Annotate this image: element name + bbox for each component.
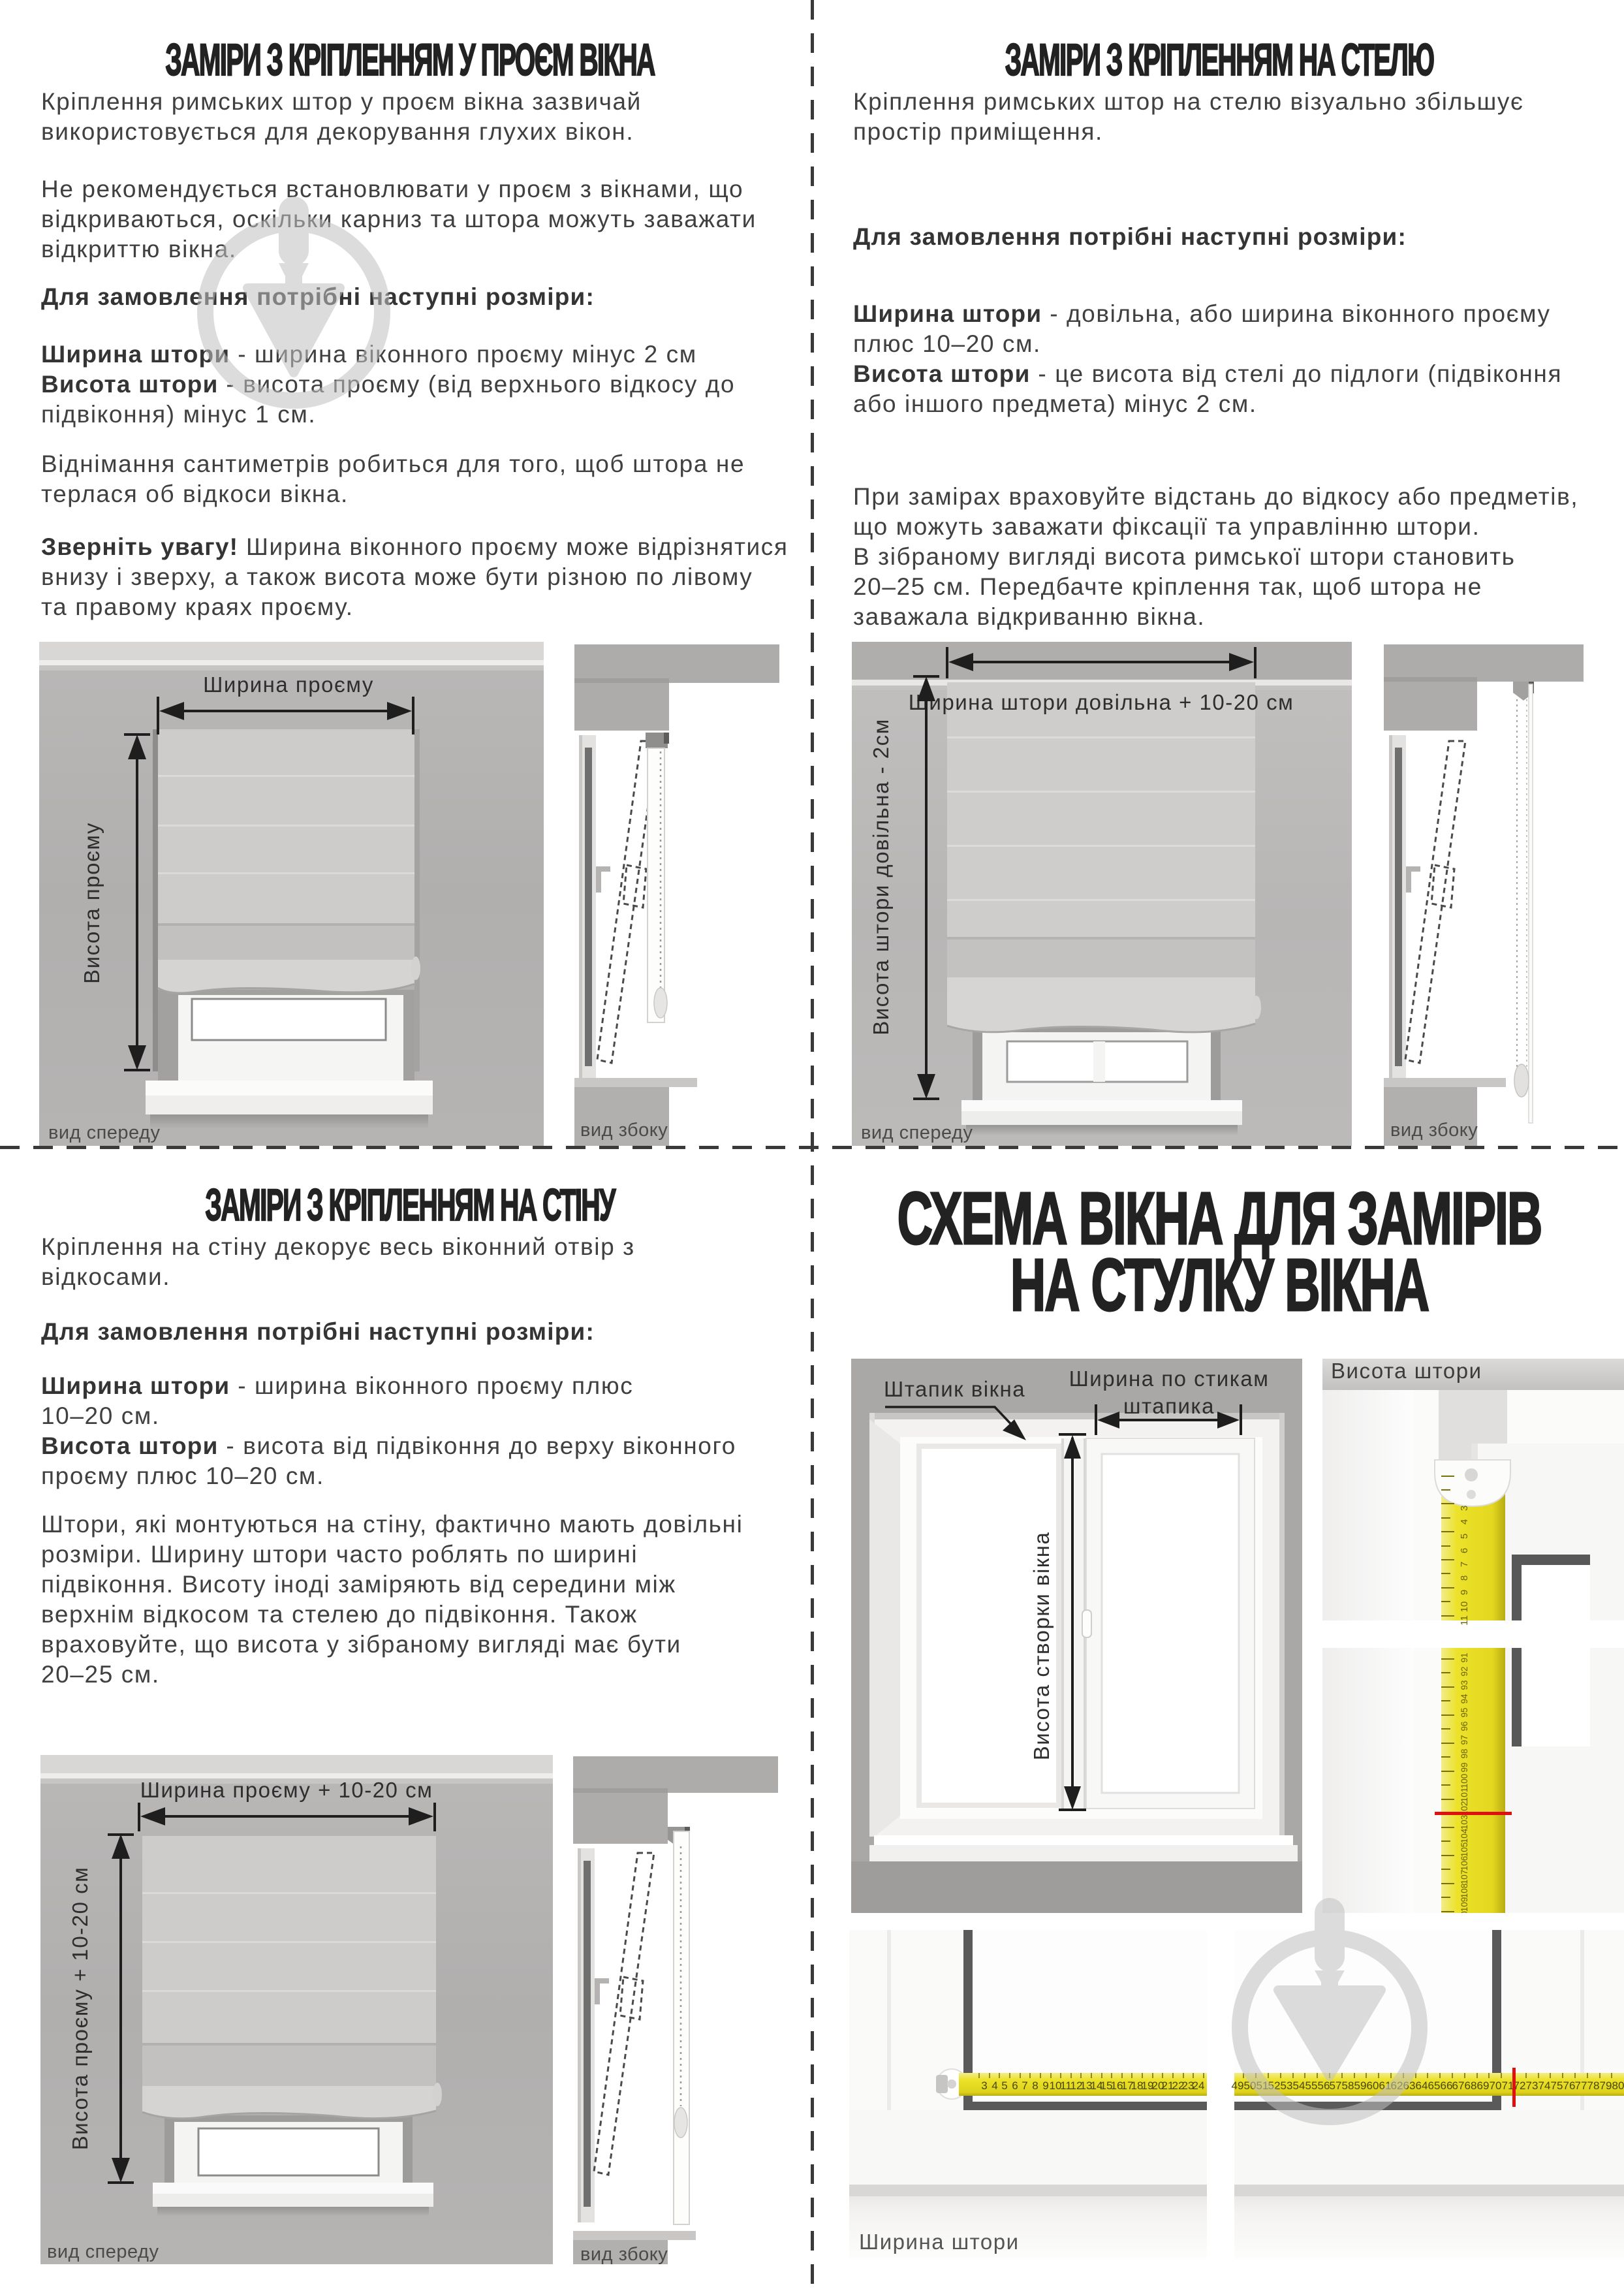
svg-text:97: 97 xyxy=(1460,1735,1469,1745)
svg-text:3: 3 xyxy=(981,2079,987,2092)
svg-text:5: 5 xyxy=(1459,1534,1470,1539)
svg-text:7: 7 xyxy=(1022,2079,1027,2092)
svg-text:8: 8 xyxy=(1032,2079,1038,2092)
svg-text:Висота штори: Висота штори xyxy=(1331,1359,1482,1383)
svg-text:вид збоку: вид збоку xyxy=(580,2244,668,2264)
svg-text:вид спереду: вид спереду xyxy=(47,2241,159,2262)
svg-text:Ширина проєму + 10-20 см: Ширина проєму + 10-20 см xyxy=(140,1778,433,1802)
svg-text:Ширина штори довільна + 10-20: Ширина штори довільна + 10-20 см xyxy=(909,690,1294,714)
svg-text:Ширина штори: Ширина штори xyxy=(859,2230,1020,2254)
svg-text:11: 11 xyxy=(1459,1615,1470,1626)
svg-text:24: 24 xyxy=(1193,2079,1205,2092)
svg-text:Штапик вікна: Штапик вікна xyxy=(884,1377,1025,1401)
svg-text:71: 71 xyxy=(1502,2079,1514,2092)
svg-text:75: 75 xyxy=(1551,2079,1563,2092)
svg-text:68: 68 xyxy=(1465,2079,1477,2092)
svg-text:98: 98 xyxy=(1460,1748,1469,1758)
svg-text:108: 108 xyxy=(1460,1884,1469,1899)
svg-text:Ширина по стикам: Ширина по стикам xyxy=(1069,1367,1270,1391)
svg-text:96: 96 xyxy=(1460,1721,1469,1731)
svg-text:9: 9 xyxy=(1042,2079,1048,2092)
svg-text:вид збоку: вид збоку xyxy=(580,1120,668,1141)
svg-text:78: 78 xyxy=(1587,2079,1600,2092)
svg-text:99: 99 xyxy=(1460,1762,1469,1772)
svg-text:105: 105 xyxy=(1460,1842,1469,1857)
svg-text:66: 66 xyxy=(1441,2079,1453,2092)
svg-text:6: 6 xyxy=(1012,2079,1018,2092)
svg-text:107: 107 xyxy=(1460,1870,1469,1885)
svg-text:7: 7 xyxy=(1459,1562,1470,1567)
svg-text:Висота штори довільна - 2см: Висота штори довільна - 2см xyxy=(869,718,893,1035)
svg-text:91: 91 xyxy=(1460,1652,1469,1662)
svg-text:101: 101 xyxy=(1460,1788,1469,1803)
svg-text:8: 8 xyxy=(1459,1575,1470,1581)
svg-text:Ширина проєму: Ширина проєму xyxy=(203,672,374,697)
svg-text:109: 109 xyxy=(1460,1897,1469,1912)
svg-text:Висота проєму: Висота проєму xyxy=(80,822,104,984)
svg-text:93: 93 xyxy=(1460,1680,1469,1690)
svg-text:70: 70 xyxy=(1490,2079,1502,2092)
svg-text:77: 77 xyxy=(1575,2079,1587,2092)
svg-text:73: 73 xyxy=(1526,2079,1538,2092)
svg-text:106: 106 xyxy=(1460,1856,1469,1871)
svg-text:69: 69 xyxy=(1477,2079,1490,2092)
svg-text:94: 94 xyxy=(1460,1694,1469,1704)
svg-text:5: 5 xyxy=(1001,2079,1007,2092)
svg-text:4: 4 xyxy=(1459,1519,1470,1525)
svg-text:4: 4 xyxy=(992,2079,997,2092)
svg-text:3: 3 xyxy=(1459,1506,1470,1511)
svg-text:штапика: штапика xyxy=(1123,1394,1215,1418)
svg-text:10: 10 xyxy=(1459,1602,1470,1613)
svg-text:76: 76 xyxy=(1563,2079,1576,2092)
svg-text:вид збоку: вид збоку xyxy=(1390,1120,1478,1141)
svg-text:79: 79 xyxy=(1600,2079,1612,2092)
svg-text:Висота проєму + 10-20 см: Висота проєму + 10-20 см xyxy=(68,1867,92,2151)
svg-text:вид спереду: вид спереду xyxy=(48,1122,160,1143)
svg-text:Висота створки вікна: Висота створки вікна xyxy=(1029,1532,1054,1761)
svg-text:95: 95 xyxy=(1460,1707,1469,1717)
svg-text:80: 80 xyxy=(1612,2079,1624,2092)
svg-text:6: 6 xyxy=(1459,1548,1470,1553)
svg-text:вид спереду: вид спереду xyxy=(861,1122,973,1143)
svg-text:100: 100 xyxy=(1460,1774,1469,1789)
svg-text:104: 104 xyxy=(1460,1828,1469,1843)
svg-text:92: 92 xyxy=(1460,1666,1469,1676)
svg-text:110: 110 xyxy=(1460,1911,1469,1913)
svg-text:74: 74 xyxy=(1538,2079,1551,2092)
svg-text:9: 9 xyxy=(1459,1590,1470,1595)
svg-text:103: 103 xyxy=(1460,1815,1469,1830)
svg-text:67: 67 xyxy=(1452,2079,1465,2092)
